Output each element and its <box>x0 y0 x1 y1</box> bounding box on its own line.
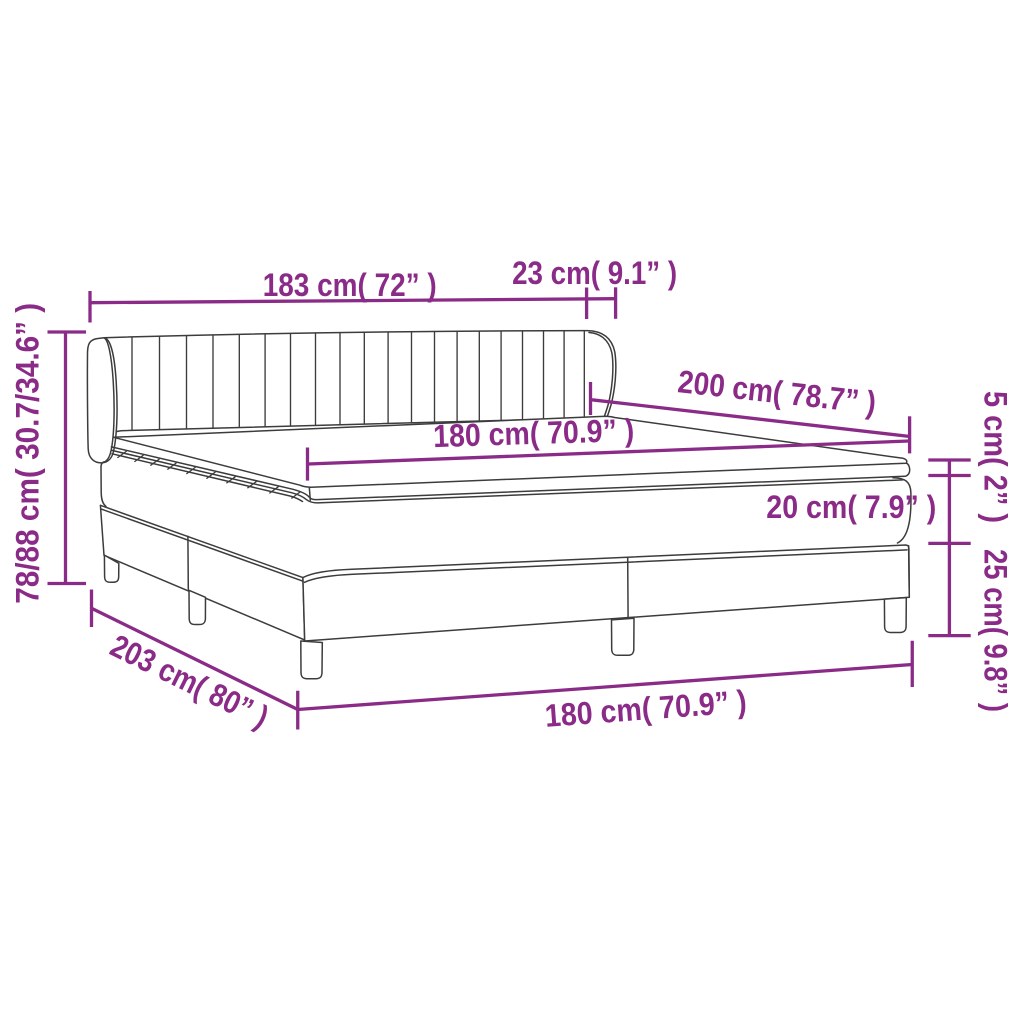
svg-text:25 cm( 9.8” ): 25 cm( 9.8” ) <box>978 549 1014 712</box>
svg-text:78/88 cm( 30.7/34.6” ): 78/88 cm( 30.7/34.6” ) <box>10 303 46 604</box>
svg-text:5 cm( 2” ): 5 cm( 2” ) <box>978 391 1014 523</box>
svg-text:20 cm( 7.9” ): 20 cm( 7.9” ) <box>766 489 936 525</box>
svg-text:23 cm( 9.1” ): 23 cm( 9.1” ) <box>512 255 677 291</box>
svg-text:183 cm( 72” ): 183 cm( 72” ) <box>263 267 437 303</box>
svg-text:180 cm( 70.9” ): 180 cm( 70.9” ) <box>433 412 635 454</box>
